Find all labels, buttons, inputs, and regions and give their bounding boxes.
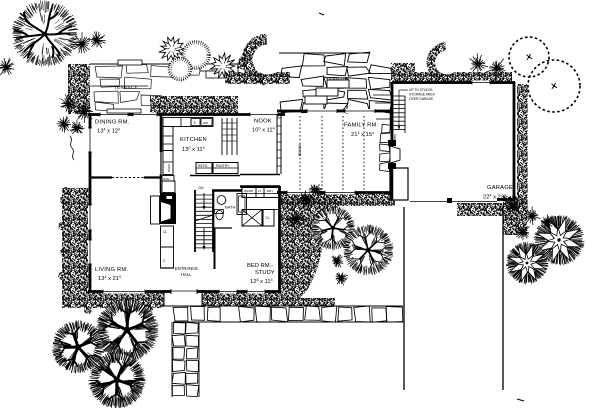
svg-text:DINING RM.: DINING RM. (95, 120, 130, 126)
svg-text:CL: CL (266, 216, 270, 220)
svg-text:214 x 154: 214 x 154 (351, 131, 374, 138)
svg-text:WASH: WASH (244, 189, 253, 193)
svg-text:134 x 120: 134 x 120 (97, 128, 120, 135)
svg-text:LIVING RM.: LIVING RM. (95, 267, 128, 273)
svg-text:STUDY: STUDY (255, 270, 275, 276)
svg-text:DW: DW (203, 121, 208, 125)
svg-text:130 x 114: 130 x 114 (182, 146, 205, 153)
svg-text:GARAGE: GARAGE (487, 185, 513, 191)
svg-text:BATH: BATH (225, 205, 235, 210)
svg-text:TERRACE: TERRACE (114, 85, 138, 90)
svg-text:DRY: DRY (267, 189, 273, 193)
svg-text:BBQ: BBQ (393, 133, 397, 140)
svg-text:CL: CL (163, 230, 167, 234)
svg-text:128 x 114: 128 x 114 (250, 278, 273, 285)
svg-text:PANTRY: PANTRY (216, 164, 230, 168)
svg-text:224 x 234: 224 x 234 (483, 194, 506, 201)
svg-text:BED RM.-: BED RM.- (247, 263, 273, 269)
svg-text:DN: DN (199, 186, 204, 190)
svg-text:BEAMS: BEAMS (298, 143, 302, 156)
svg-text:ENTRANCE: ENTRANCE (175, 266, 198, 271)
svg-text:B.RL.: B.RL. (164, 177, 171, 181)
svg-text:LT: LT (258, 189, 261, 193)
svg-text:OVER GARAGE: OVER GARAGE (409, 97, 434, 101)
svg-text:HALL: HALL (181, 272, 192, 277)
svg-text:KITCHEN: KITCHEN (180, 137, 207, 143)
svg-text:REFG.: REFG. (198, 164, 208, 168)
svg-text:100 x 114: 100 x 114 (252, 127, 275, 134)
svg-text:FAMILY RM.: FAMILY RM. (344, 123, 379, 129)
svg-text:NOOK: NOOK (254, 119, 272, 125)
svg-text:OVEN: OVEN (167, 164, 171, 172)
svg-text:UP TO STUDIO-: UP TO STUDIO- (409, 88, 433, 92)
svg-text:STORAGE AREA: STORAGE AREA (409, 93, 436, 97)
svg-text:134 x 210: 134 x 210 (98, 275, 121, 282)
